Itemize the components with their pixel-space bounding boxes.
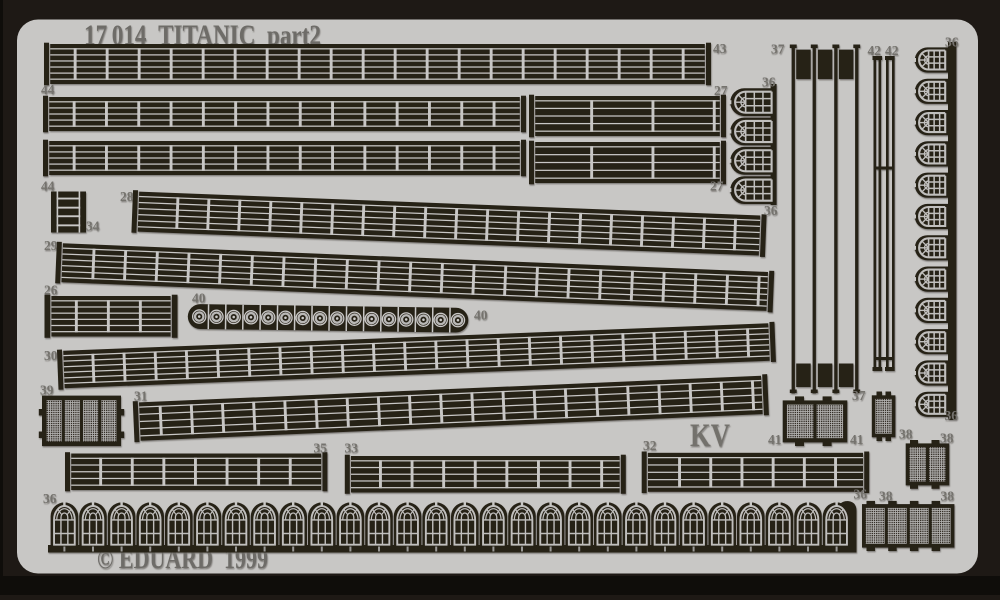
svg-text:42: 42 (885, 43, 899, 58)
svg-text:38: 38 (879, 489, 893, 504)
svg-text:33: 33 (345, 441, 359, 456)
svg-text:38: 38 (899, 426, 913, 441)
svg-text:28: 28 (120, 189, 134, 204)
svg-text:41: 41 (768, 432, 782, 447)
svg-text:34: 34 (86, 218, 100, 233)
svg-text:36: 36 (43, 491, 57, 506)
svg-text:26: 26 (44, 283, 58, 298)
svg-text:35: 35 (314, 440, 328, 455)
svg-text:39: 39 (40, 383, 54, 398)
svg-text:27: 27 (714, 83, 728, 98)
svg-text:32: 32 (643, 438, 657, 453)
svg-text:31: 31 (134, 389, 148, 404)
svg-text:KV: KV (690, 418, 730, 454)
svg-text:38: 38 (940, 430, 954, 445)
svg-text:41: 41 (850, 432, 864, 447)
svg-text:36: 36 (764, 203, 778, 218)
svg-text:36: 36 (945, 34, 959, 49)
svg-text:36: 36 (945, 408, 959, 423)
svg-text:43: 43 (713, 41, 727, 56)
svg-text:42: 42 (868, 43, 882, 58)
svg-text:36: 36 (762, 75, 776, 90)
svg-text:40: 40 (192, 290, 206, 305)
svg-text:27: 27 (710, 179, 724, 194)
svg-text:44: 44 (41, 179, 55, 194)
svg-text:37: 37 (771, 42, 785, 57)
svg-text:37: 37 (852, 388, 866, 403)
svg-text:29: 29 (44, 238, 58, 253)
svg-text:36: 36 (854, 487, 868, 502)
svg-text:44: 44 (41, 82, 55, 97)
svg-text:30: 30 (44, 348, 58, 363)
svg-text:38: 38 (941, 489, 955, 504)
svg-text:40: 40 (474, 307, 488, 322)
